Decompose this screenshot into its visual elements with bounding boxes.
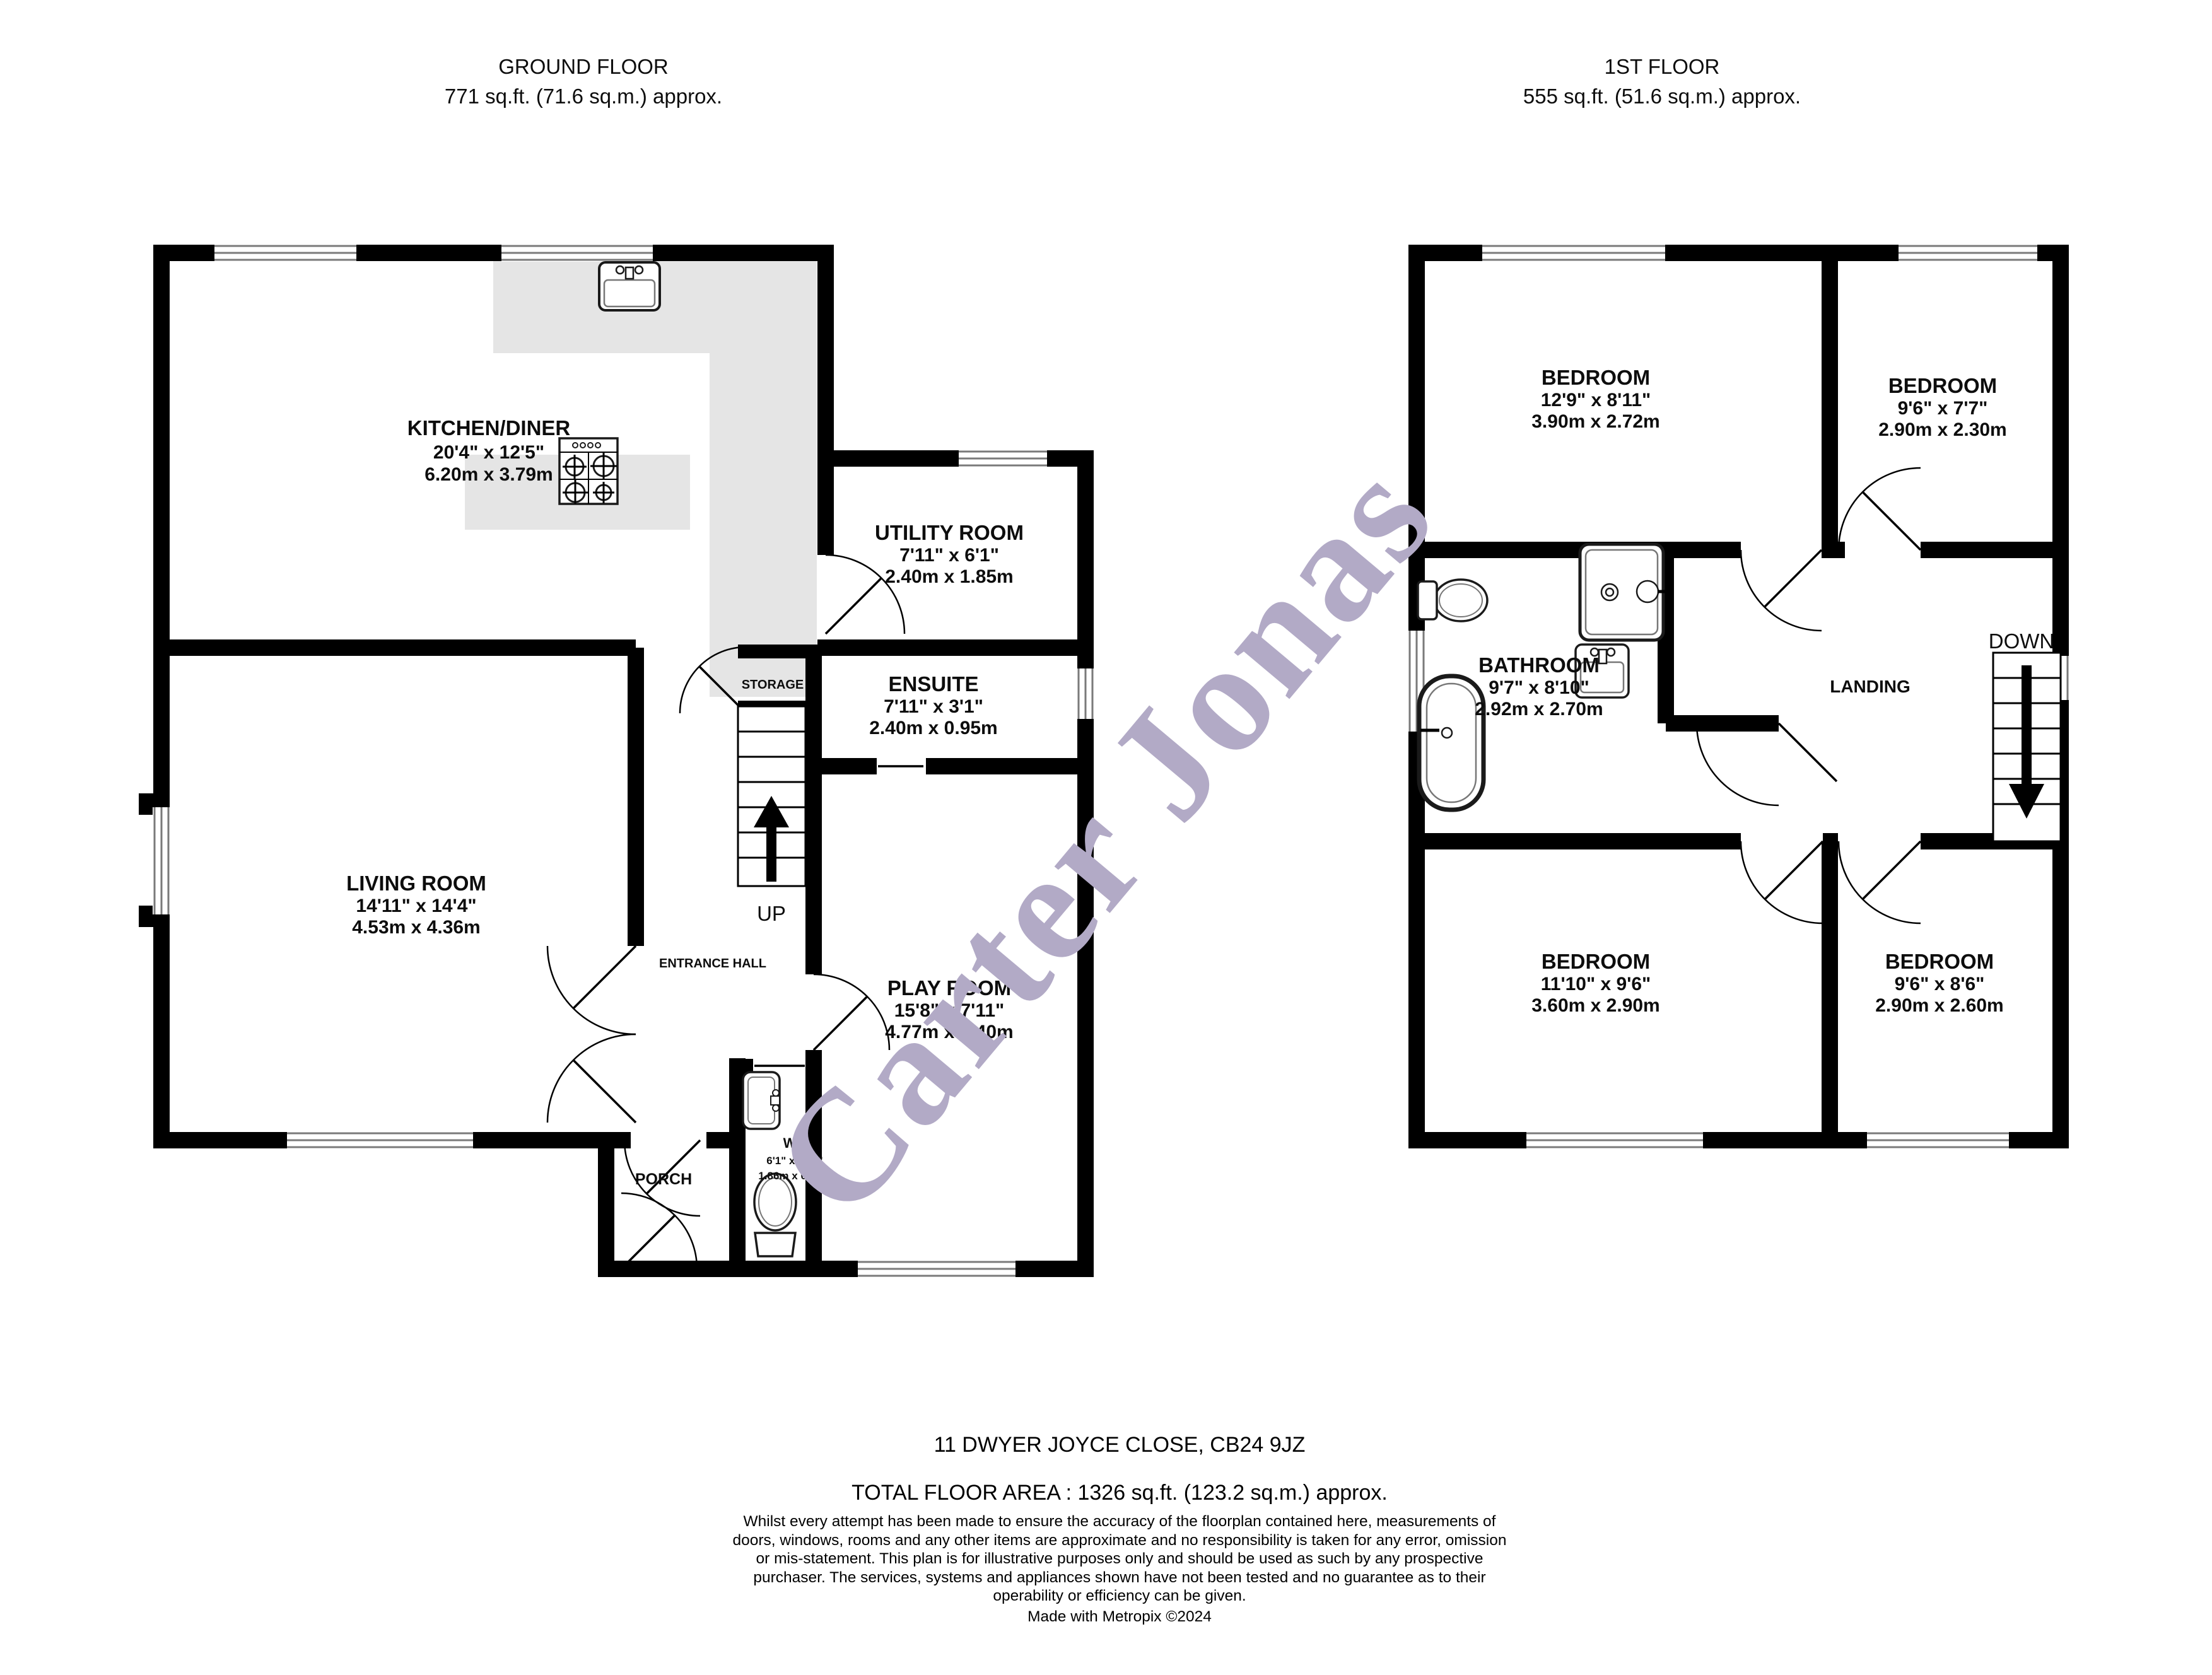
svg-text:2.90m x 2.60m: 2.90m x 2.60m	[1875, 995, 2003, 1016]
svg-text:BEDROOM: BEDROOM	[1888, 374, 1997, 397]
bathroom-label: BATHROOM 9'7" x 8'10" 2.92m x 2.70m	[1475, 653, 1603, 720]
svg-text:15'8" x 7'11": 15'8" x 7'11"	[894, 1000, 1005, 1021]
first-floor-title: 1ST FLOOR 555 sq.ft. (51.6 sq.m.) approx…	[1403, 52, 1921, 111]
bedroom1-label: BEDROOM 12'9" x 8'11" 3.90m x 2.72m	[1531, 366, 1659, 432]
ground-floor-plan: KITCHEN/DINER 20'4" x 12'5" 6.20m x 3.79…	[114, 221, 1135, 1305]
total-floor-area: TOTAL FLOOR AREA : 1326 sq.ft. (123.2 sq…	[568, 1481, 1671, 1505]
bedroom2-label: BEDROOM 9'6" x 7'7" 2.90m x 2.30m	[1878, 374, 2006, 440]
first-floor-plan: BEDROOM 12'9" x 8'11" 3.90m x 2.72m BEDR…	[1375, 221, 2119, 1179]
svg-text:2.92m x 2.70m: 2.92m x 2.70m	[1475, 699, 1603, 720]
hob-icon	[559, 438, 617, 504]
svg-text:3.60m x 2.90m: 3.60m x 2.90m	[1531, 995, 1659, 1016]
svg-text:PLAY ROOM: PLAY ROOM	[887, 976, 1011, 1000]
svg-text:4.53m x 4.36m: 4.53m x 4.36m	[352, 917, 480, 938]
metropix-credit: Made with Metropix ©2024	[568, 1608, 1671, 1626]
svg-text:UTILITY ROOM: UTILITY ROOM	[875, 521, 1024, 544]
kitchen-sink-icon	[599, 262, 660, 310]
svg-text:4.77m x 2.40m: 4.77m x 2.40m	[885, 1022, 1013, 1042]
disclaimer-text: Whilst every attempt has been made to en…	[729, 1512, 1511, 1606]
bathroom-toilet-icon	[1418, 580, 1487, 621]
shower-icon	[1580, 544, 1674, 640]
svg-text:KITCHEN/DINER: KITCHEN/DINER	[407, 416, 571, 440]
svg-text:20'4" x 12'5": 20'4" x 12'5"	[433, 442, 544, 463]
landing-label: LANDING	[1830, 677, 1911, 696]
utility-room-label: UTILITY ROOM 7'11" x 6'1" 2.40m x 1.85m	[875, 521, 1024, 587]
wc-toilet-icon	[754, 1174, 796, 1256]
bedroom4-label: BEDROOM 9'6" x 8'6" 2.90m x 2.60m	[1875, 950, 2003, 1016]
footer-notes: Whilst every attempt has been made to en…	[568, 1512, 1671, 1626]
ensuite-label: ENSUITE 7'11" x 3'1" 2.40m x 0.95m	[869, 672, 997, 738]
svg-text:7'11" x 3'1": 7'11" x 3'1"	[884, 696, 983, 717]
first-floor-title-line: 1ST FLOOR	[1403, 52, 1921, 81]
svg-text:12'9" x 8'11": 12'9" x 8'11"	[1541, 390, 1651, 411]
svg-text:3.90m x 2.72m: 3.90m x 2.72m	[1531, 411, 1659, 432]
living-room-label: LIVING ROOM 14'11" x 14'4" 4.53m x 4.36m	[346, 872, 486, 938]
wc-sink-icon	[743, 1072, 780, 1129]
bedroom3-label: BEDROOM 11'10" x 9'6" 3.60m x 2.90m	[1531, 950, 1659, 1016]
svg-text:11'10" x 9'6": 11'10" x 9'6"	[1541, 974, 1651, 995]
ground-floor-area-line: 771 sq.ft. (71.6 sq.m.) approx.	[325, 81, 842, 111]
svg-text:9'6" x 8'6": 9'6" x 8'6"	[1895, 974, 1985, 995]
svg-text:6.20m x 3.79m: 6.20m x 3.79m	[424, 464, 553, 485]
ground-floor-title: GROUND FLOOR 771 sq.ft. (71.6 sq.m.) app…	[325, 52, 842, 111]
first-floor-area-line: 555 sq.ft. (51.6 sq.m.) approx.	[1403, 81, 1921, 111]
svg-text:BEDROOM: BEDROOM	[1542, 366, 1650, 389]
porch-label: PORCH	[635, 1170, 692, 1188]
svg-text:LIVING ROOM: LIVING ROOM	[346, 872, 486, 895]
ground-floor-title-line: GROUND FLOOR	[325, 52, 842, 81]
staircase-down	[1993, 653, 2061, 841]
svg-text:WC: WC	[783, 1135, 807, 1151]
svg-text:ENSUITE: ENSUITE	[888, 672, 978, 696]
floorplan-page: GROUND FLOOR 771 sq.ft. (71.6 sq.m.) app…	[0, 0, 2212, 1675]
svg-text:6'1" x 2'11": 6'1" x 2'11"	[766, 1155, 822, 1167]
staircase-up	[738, 706, 805, 886]
svg-text:7'11" x 6'1": 7'11" x 6'1"	[899, 545, 999, 566]
svg-text:1.86m x 0.88m: 1.86m x 0.88m	[758, 1170, 831, 1182]
svg-text:9'7" x 8'10": 9'7" x 8'10"	[1489, 677, 1589, 698]
svg-text:14'11" x 14'4": 14'11" x 14'4"	[356, 896, 476, 916]
svg-text:2.40m x 1.85m: 2.40m x 1.85m	[885, 566, 1013, 587]
kitchen-diner-label: KITCHEN/DINER 20'4" x 12'5" 6.20m x 3.79…	[407, 416, 571, 485]
svg-text:BATHROOM: BATHROOM	[1478, 653, 1600, 677]
svg-text:2.40m x 0.95m: 2.40m x 0.95m	[869, 718, 997, 738]
ground-floor-walls	[139, 253, 1086, 1269]
storage-label: STORAGE	[742, 678, 804, 692]
bathtub-icon	[1419, 676, 1483, 810]
property-address: 11 DWYER JOYCE CLOSE, CB24 9JZ	[568, 1433, 1671, 1457]
up-label: UP	[757, 902, 786, 925]
svg-text:BEDROOM: BEDROOM	[1885, 950, 1994, 973]
play-room-label: PLAY ROOM 15'8" x 7'11" 4.77m x 2.40m	[885, 976, 1013, 1042]
svg-text:BEDROOM: BEDROOM	[1542, 950, 1650, 973]
svg-text:9'6" x 7'7": 9'6" x 7'7"	[1898, 398, 1988, 419]
down-label: DOWN	[1989, 629, 2054, 653]
svg-text:2.90m x 2.30m: 2.90m x 2.30m	[1878, 419, 2006, 440]
entrance-hall-label: ENTRANCE HALL	[659, 957, 766, 971]
